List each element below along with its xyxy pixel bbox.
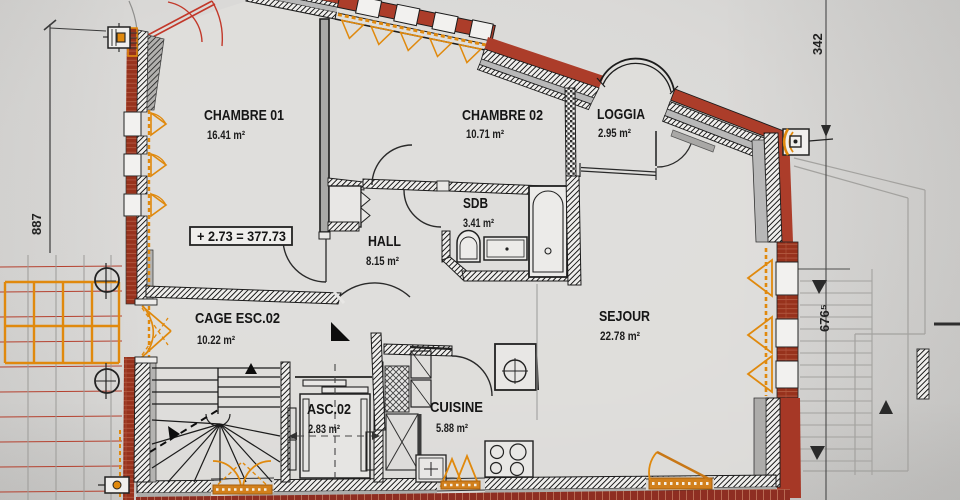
svg-text:CHAMBRE 01: CHAMBRE 01 [204, 107, 284, 124]
svg-text:342: 342 [810, 33, 825, 55]
svg-text:5.88 m²: 5.88 m² [436, 421, 468, 435]
svg-text:887: 887 [29, 213, 44, 235]
svg-text:HALL: HALL [368, 233, 401, 250]
svg-text:CUISINE: CUISINE [430, 399, 483, 416]
svg-text:10.71 m²: 10.71 m² [466, 127, 504, 141]
svg-text:3.41 m²: 3.41 m² [463, 216, 494, 230]
svg-text:SEJOUR: SEJOUR [599, 308, 650, 325]
svg-text:22.78 m²: 22.78 m² [600, 329, 640, 343]
svg-text:2.95 m²: 2.95 m² [598, 126, 631, 140]
svg-text:ASC.02: ASC.02 [307, 401, 351, 418]
svg-text:8.15 m²: 8.15 m² [366, 254, 399, 268]
svg-text:CAGE ESC.02: CAGE ESC.02 [195, 310, 280, 327]
svg-text:16.41 m²: 16.41 m² [207, 128, 245, 142]
svg-text:CHAMBRE 02: CHAMBRE 02 [462, 107, 543, 124]
svg-text:LOGGIA: LOGGIA [597, 106, 645, 123]
svg-text:10.22 m²: 10.22 m² [197, 333, 235, 347]
svg-text:+ 2.73 = 377.73: + 2.73 = 377.73 [197, 229, 286, 244]
svg-text:676⁵: 676⁵ [817, 304, 832, 332]
svg-text:2.83 m²: 2.83 m² [308, 422, 340, 436]
svg-text:SDB: SDB [463, 195, 488, 212]
